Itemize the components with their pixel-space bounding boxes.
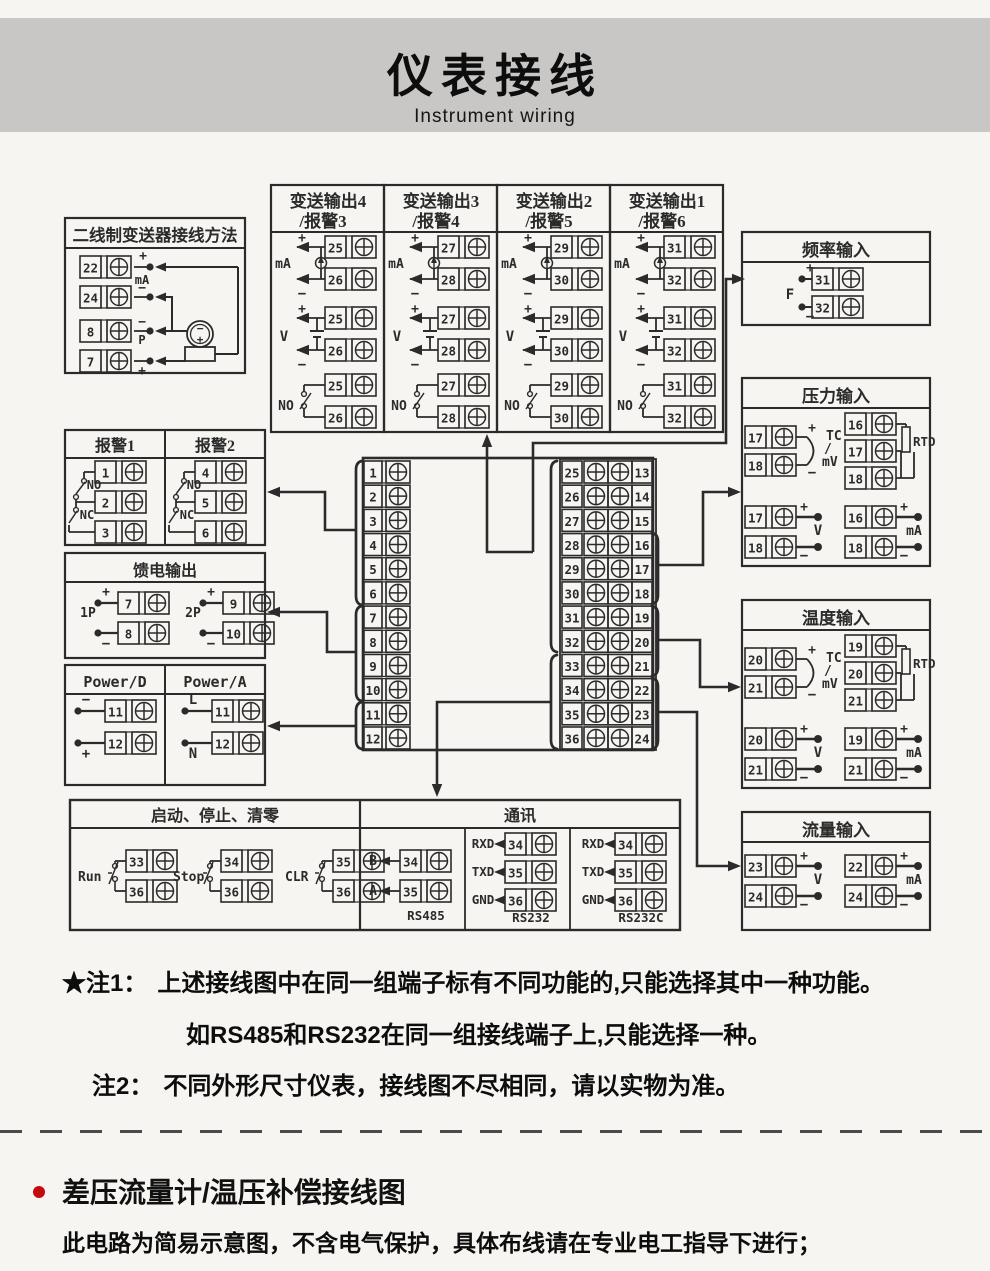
svg-text:8: 8 — [125, 627, 133, 642]
svg-text:NO: NO — [391, 399, 407, 414]
svg-text:17: 17 — [634, 562, 649, 577]
svg-text:26: 26 — [328, 411, 343, 426]
svg-text:Power/D: Power/D — [83, 673, 146, 691]
svg-text:17: 17 — [748, 431, 763, 446]
svg-text:压力输入: 压力输入 — [802, 386, 870, 406]
footer-description: 此电路为简易示意图，不含电气保护，具体布线请在专业电工指导下进行； — [62, 1224, 821, 1258]
svg-text:变送输出4: 变送输出4 — [290, 191, 367, 211]
svg-text:35: 35 — [508, 866, 523, 881]
box-feed-output: 馈电输出1P78+−2P910+− — [65, 553, 274, 658]
svg-text:18: 18 — [848, 472, 863, 487]
svg-text:mA: mA — [614, 257, 630, 272]
svg-text:5: 5 — [202, 496, 210, 511]
svg-text:+: + — [298, 302, 306, 317]
svg-text:−: − — [524, 357, 532, 373]
svg-text:7: 7 — [125, 597, 133, 612]
svg-text:+: + — [900, 849, 908, 864]
box-comm: B34A35RS485RXD34TXD35GND36RS232RXD34TXD3… — [369, 828, 666, 930]
svg-text:36: 36 — [224, 885, 239, 900]
svg-text:13: 13 — [634, 466, 649, 481]
svg-text:8: 8 — [87, 325, 95, 340]
svg-text:−: − — [900, 770, 908, 786]
svg-text:20: 20 — [848, 667, 863, 682]
svg-text:18: 18 — [634, 586, 649, 601]
svg-text:mV: mV — [822, 677, 838, 692]
svg-text:V: V — [814, 872, 823, 888]
svg-text:4: 4 — [202, 466, 210, 481]
svg-text:25: 25 — [328, 312, 343, 327]
svg-text:温度输入: 温度输入 — [802, 608, 870, 628]
svg-text:5: 5 — [369, 562, 377, 577]
svg-text:+: + — [800, 500, 808, 515]
svg-text:11: 11 — [365, 707, 380, 722]
svg-text:21: 21 — [848, 763, 863, 778]
svg-text:N: N — [189, 746, 197, 762]
svg-text:10: 10 — [226, 627, 241, 642]
svg-text:35: 35 — [618, 866, 633, 881]
svg-text:24: 24 — [634, 731, 649, 746]
svg-text:Power/A: Power/A — [183, 673, 246, 691]
svg-text:−: − — [138, 281, 146, 296]
svg-text:−: − — [298, 357, 306, 373]
box-alarm: 报警1123NONC报警2456NONC — [65, 430, 265, 545]
svg-text:V: V — [393, 329, 402, 345]
svg-text:NO: NO — [87, 478, 101, 492]
svg-text:+: + — [808, 643, 816, 658]
svg-text:CLR: CLR — [285, 870, 309, 885]
svg-text:+: + — [82, 746, 90, 762]
svg-text:mA: mA — [906, 746, 922, 761]
svg-text:4: 4 — [369, 538, 377, 553]
svg-text:2: 2 — [369, 490, 377, 505]
svg-text:+: + — [637, 231, 645, 246]
box-frequency-input: 频率输入3132+−F — [742, 232, 930, 325]
center-terminal-block: 1234567891011122513261427152816291730183… — [356, 458, 658, 750]
svg-text:27: 27 — [441, 312, 456, 327]
svg-text:20: 20 — [634, 635, 649, 650]
box-power: Power/D1112−+Power/A1112LN — [65, 665, 265, 785]
svg-text:27: 27 — [441, 379, 456, 394]
svg-text:+: + — [800, 722, 808, 737]
svg-text:30: 30 — [554, 273, 569, 288]
svg-text:+: + — [207, 585, 215, 600]
svg-text:馈电输出: 馈电输出 — [133, 561, 197, 580]
svg-text:TXD: TXD — [472, 864, 495, 879]
svg-text:V: V — [814, 523, 823, 539]
svg-text:14: 14 — [634, 490, 649, 505]
note-2: 注2：不同外形尺寸仪表，接线图不尽相同，请以实物为准。 — [92, 1066, 739, 1101]
svg-text:6: 6 — [202, 526, 210, 541]
svg-text:+: + — [298, 231, 306, 246]
svg-text:26: 26 — [328, 344, 343, 359]
svg-text:7: 7 — [87, 355, 95, 370]
page: { "page": { "bg": "#f6f5f2", "line_color… — [0, 0, 990, 1271]
svg-text:20: 20 — [748, 653, 763, 668]
svg-text:−: − — [800, 897, 808, 913]
svg-text:RS232: RS232 — [512, 910, 550, 925]
svg-text:6: 6 — [369, 586, 377, 601]
svg-text:−: − — [82, 692, 90, 708]
svg-text:33: 33 — [564, 659, 579, 674]
svg-text:二线制变送器接线方法: 二线制变送器接线方法 — [73, 225, 238, 245]
svg-text:36: 36 — [564, 731, 579, 746]
svg-text:34: 34 — [508, 838, 523, 853]
svg-text:21: 21 — [748, 681, 763, 696]
svg-text:28: 28 — [441, 344, 456, 359]
svg-text:31: 31 — [815, 273, 830, 288]
svg-text:28: 28 — [564, 538, 579, 553]
svg-text:15: 15 — [634, 514, 649, 529]
svg-text:34: 34 — [564, 683, 579, 698]
wiring-diagram: 1234567891011122513261427152816291730183… — [0, 0, 990, 950]
note-1-line-2: 如RS485和RS232在同一组接线端子上,只能选择一种。 — [186, 1015, 771, 1050]
box-output-1: 变送输出4/报警32526+−mA2526+−V2526NO — [271, 185, 384, 432]
svg-text:24: 24 — [83, 291, 98, 306]
svg-text:NO: NO — [617, 399, 633, 414]
svg-text:22: 22 — [83, 261, 98, 276]
svg-text:mA: mA — [275, 257, 291, 272]
svg-text:−: − — [800, 770, 808, 786]
svg-text:9: 9 — [230, 597, 238, 612]
svg-text:NC: NC — [180, 508, 194, 522]
svg-text:+: + — [900, 500, 908, 515]
svg-text:11: 11 — [108, 705, 123, 720]
svg-text:28: 28 — [441, 273, 456, 288]
svg-text:31: 31 — [667, 379, 682, 394]
svg-text:−: − — [298, 286, 306, 302]
svg-text:A: A — [369, 884, 377, 899]
svg-text:RTD: RTD — [913, 656, 936, 671]
box-flow-input: 流量输入2324+−V2224+−mA — [742, 812, 930, 930]
svg-text:+: + — [524, 302, 532, 317]
svg-text:9: 9 — [369, 659, 377, 674]
svg-text:1: 1 — [102, 466, 110, 481]
svg-text:变送输出3: 变送输出3 — [403, 191, 480, 211]
svg-text:mA: mA — [906, 873, 922, 888]
svg-text:19: 19 — [848, 733, 863, 748]
svg-text:变送输出1: 变送输出1 — [629, 191, 706, 211]
svg-text:−: − — [138, 315, 146, 330]
bullet-icon — [33, 1186, 45, 1198]
svg-text:+: + — [637, 302, 645, 317]
svg-text:P: P — [138, 333, 145, 347]
svg-text:34: 34 — [403, 855, 418, 870]
svg-text:18: 18 — [848, 541, 863, 556]
svg-text:12: 12 — [108, 737, 123, 752]
svg-text:报警2: 报警2 — [195, 436, 235, 455]
svg-text:24: 24 — [848, 890, 863, 905]
svg-text:24: 24 — [748, 890, 763, 905]
svg-text:34: 34 — [224, 855, 239, 870]
svg-text:29: 29 — [554, 312, 569, 327]
svg-text:−: − — [524, 286, 532, 302]
svg-text:−: − — [808, 687, 816, 703]
note-1-tag: ★注1： — [62, 970, 147, 997]
svg-text:F: F — [786, 287, 794, 303]
svg-text:23: 23 — [634, 707, 649, 722]
note-2-text: 不同外形尺寸仪表，接线图不尽相同，请以实物为准。 — [163, 1073, 739, 1100]
svg-text:−: − — [800, 548, 808, 564]
svg-text:mV: mV — [822, 455, 838, 470]
svg-text:20: 20 — [748, 733, 763, 748]
svg-text:−: − — [900, 897, 908, 913]
svg-text:31: 31 — [667, 312, 682, 327]
svg-text:TXD: TXD — [582, 864, 605, 879]
svg-text:/报警4: /报警4 — [411, 211, 460, 231]
svg-text:NC: NC — [80, 508, 94, 522]
svg-text:−: − — [637, 286, 645, 302]
svg-text:26: 26 — [564, 490, 579, 505]
svg-text:35: 35 — [336, 855, 351, 870]
svg-text:27: 27 — [441, 241, 456, 256]
svg-text:16: 16 — [848, 511, 863, 526]
svg-text:22: 22 — [634, 683, 649, 698]
svg-text:19: 19 — [634, 611, 649, 626]
svg-text:25: 25 — [328, 379, 343, 394]
svg-text:3: 3 — [369, 514, 377, 529]
svg-text:32: 32 — [667, 273, 682, 288]
svg-text:17: 17 — [848, 445, 863, 460]
svg-text:+: + — [411, 231, 419, 246]
box-temperature-input: 温度输入2021+−TC/mV192021RTD2021+−V1921+−mA — [742, 600, 936, 788]
svg-text:NO: NO — [504, 399, 520, 414]
svg-text:7: 7 — [369, 611, 377, 626]
svg-text:−: − — [411, 286, 419, 302]
svg-text:32: 32 — [667, 411, 682, 426]
svg-text:/报警3: /报警3 — [298, 211, 346, 231]
svg-text:+: + — [806, 261, 814, 276]
svg-text:8: 8 — [369, 635, 377, 650]
svg-text:+: + — [139, 249, 147, 264]
svg-text:+: + — [900, 722, 908, 737]
svg-text:B: B — [369, 854, 377, 869]
svg-text:V: V — [506, 329, 515, 345]
svg-text:1: 1 — [369, 466, 377, 481]
svg-text:频率输入: 频率输入 — [802, 240, 870, 260]
svg-text:GND: GND — [582, 892, 605, 907]
svg-text:2: 2 — [102, 496, 110, 511]
svg-text:34: 34 — [618, 838, 633, 853]
svg-text:+: + — [800, 849, 808, 864]
svg-text:mA: mA — [388, 257, 404, 272]
svg-text:10: 10 — [365, 683, 380, 698]
svg-text:1P: 1P — [80, 606, 96, 621]
box-output-4: 变送输出1/报警63132+−mA3132+−V3132NO — [610, 185, 723, 432]
svg-text:21: 21 — [748, 763, 763, 778]
svg-text:18: 18 — [748, 541, 763, 556]
box-output-2: 变送输出3/报警42728+−mA2728+−V2728NO — [384, 185, 497, 432]
svg-text:Stop: Stop — [173, 870, 204, 885]
svg-text:17: 17 — [748, 511, 763, 526]
note-1-line-1: ★注1：上述接线图中在同一组端子标有不同功能的,只能选择其中一种功能。 — [62, 963, 884, 998]
svg-text:−: − — [637, 357, 645, 373]
svg-text:32: 32 — [564, 635, 579, 650]
svg-text:通讯: 通讯 — [504, 807, 536, 825]
box-output-3: 变送输出2/报警52930+−mA2930+−V2930NO — [497, 185, 610, 432]
svg-text:启动、停止、清零: 启动、停止、清零 — [151, 806, 280, 825]
svg-text:19: 19 — [848, 640, 863, 655]
svg-text:Run: Run — [78, 870, 101, 885]
svg-text:GND: GND — [472, 892, 495, 907]
svg-text:11: 11 — [215, 705, 230, 720]
svg-text:21: 21 — [634, 659, 649, 674]
svg-text:16: 16 — [634, 538, 649, 553]
svg-text:−: − — [411, 357, 419, 373]
svg-text:+: + — [197, 333, 204, 346]
svg-text:变送输出2: 变送输出2 — [516, 191, 593, 211]
svg-text:2P: 2P — [185, 606, 201, 621]
svg-text:32: 32 — [815, 301, 830, 316]
svg-text:16: 16 — [848, 418, 863, 433]
svg-text:+: + — [138, 364, 146, 379]
svg-text:35: 35 — [564, 707, 579, 722]
svg-text:V: V — [280, 329, 289, 345]
svg-text:22: 22 — [848, 860, 863, 875]
svg-text:23: 23 — [748, 860, 763, 875]
svg-text:29: 29 — [564, 562, 579, 577]
svg-text:NO: NO — [278, 399, 294, 414]
svg-text:V: V — [619, 329, 628, 345]
svg-text:18: 18 — [748, 459, 763, 474]
svg-text:21: 21 — [848, 694, 863, 709]
svg-text:RXD: RXD — [582, 836, 605, 851]
svg-text:32: 32 — [667, 344, 682, 359]
svg-text:报警1: 报警1 — [95, 436, 135, 455]
svg-text:31: 31 — [667, 241, 682, 256]
svg-text:30: 30 — [554, 344, 569, 359]
svg-text:mA: mA — [906, 524, 922, 539]
svg-text:33: 33 — [129, 855, 144, 870]
svg-text:25: 25 — [564, 466, 579, 481]
svg-text:−: − — [207, 636, 215, 652]
svg-text:V: V — [814, 745, 823, 761]
svg-text:NO: NO — [187, 478, 201, 492]
svg-text:+: + — [411, 302, 419, 317]
svg-text:30: 30 — [554, 411, 569, 426]
svg-text:36: 36 — [129, 885, 144, 900]
note-2-tag: 注2： — [92, 1073, 153, 1100]
svg-text:/报警5: /报警5 — [524, 211, 572, 231]
box-two-wire: 二线制变送器接线方法222487+mA−−P+−+ — [65, 218, 245, 379]
dashed-divider — [0, 1130, 990, 1133]
svg-text:36: 36 — [508, 894, 523, 909]
svg-text:25: 25 — [328, 241, 343, 256]
footer-section-title: 差压流量计/温压补偿接线图 — [62, 1171, 406, 1211]
svg-text:12: 12 — [215, 737, 230, 752]
svg-text:−: − — [806, 309, 814, 325]
svg-text:L: L — [189, 692, 197, 708]
svg-text:/报警6: /报警6 — [637, 211, 685, 231]
svg-text:29: 29 — [554, 241, 569, 256]
svg-text:36: 36 — [618, 894, 633, 909]
svg-text:+: + — [102, 585, 110, 600]
svg-text:RS232C: RS232C — [618, 910, 663, 925]
svg-text:3: 3 — [102, 526, 110, 541]
svg-text:RTD: RTD — [913, 434, 936, 449]
svg-text:流量输入: 流量输入 — [802, 820, 870, 840]
svg-text:−: − — [900, 548, 908, 564]
svg-text:28: 28 — [441, 411, 456, 426]
svg-text:RXD: RXD — [472, 836, 495, 851]
svg-text:+: + — [808, 421, 816, 436]
svg-text:mA: mA — [501, 257, 517, 272]
svg-text:30: 30 — [564, 586, 579, 601]
svg-text:26: 26 — [328, 273, 343, 288]
svg-text:+: + — [524, 231, 532, 246]
svg-text:12: 12 — [365, 731, 380, 746]
note-1-text: 上述接线图中在同一组端子标有不同功能的,只能选择其中一种功能。 — [157, 970, 884, 997]
svg-text:36: 36 — [336, 885, 351, 900]
svg-text:RS485: RS485 — [407, 908, 445, 923]
connector-lines — [267, 274, 745, 871]
svg-text:−: − — [808, 465, 816, 481]
svg-text:27: 27 — [564, 514, 579, 529]
svg-text:29: 29 — [554, 379, 569, 394]
svg-text:31: 31 — [564, 611, 579, 626]
svg-text:35: 35 — [403, 885, 418, 900]
box-pressure-input: 压力输入1718+−TC/mV161718RTD1718+−V1618+−mA — [742, 378, 936, 566]
svg-text:−: − — [102, 636, 110, 652]
